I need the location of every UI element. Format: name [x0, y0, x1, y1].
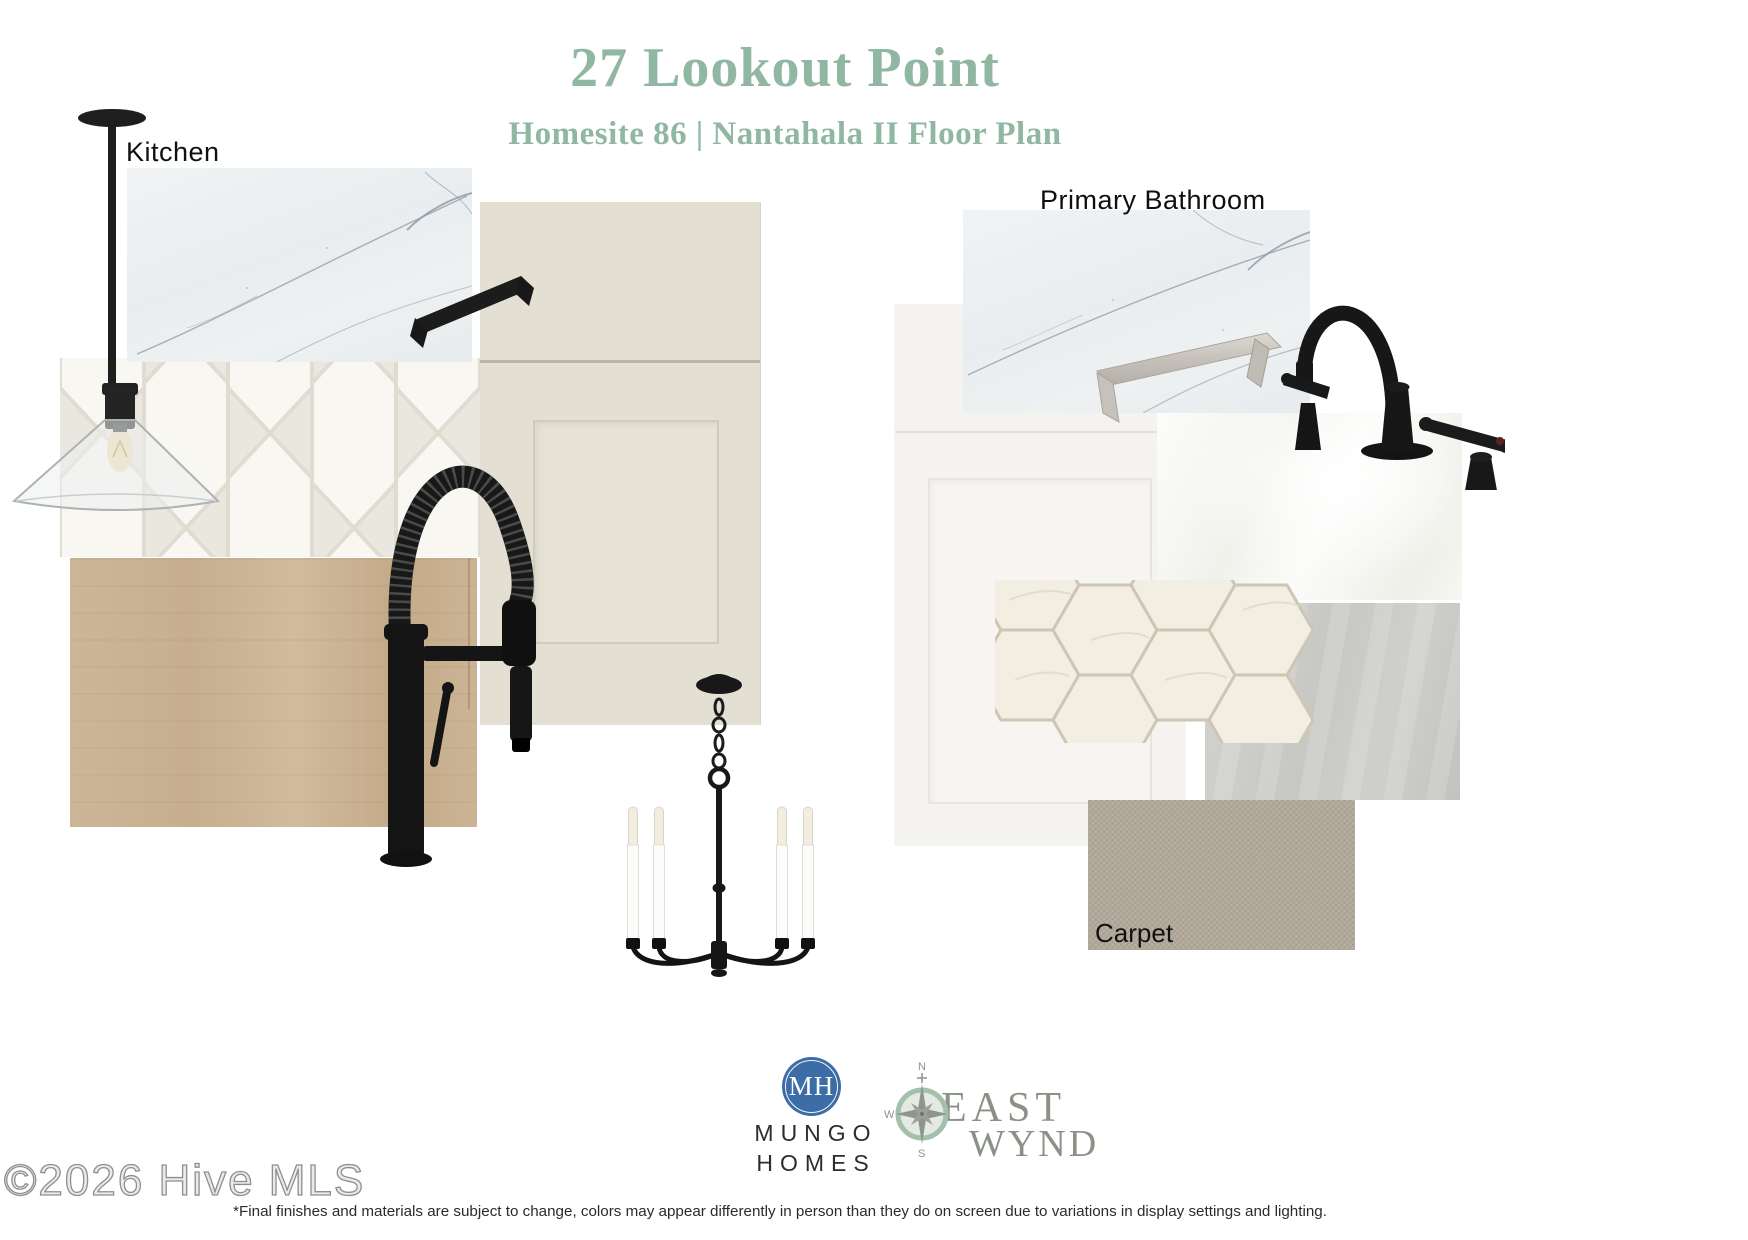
- hexagon-mosaic-swatch: [995, 580, 1315, 743]
- east-wynd-compass-icon: N W S: [884, 1052, 964, 1162]
- mh-monogram: MH: [782, 1057, 841, 1116]
- cabinet-groove: [480, 360, 760, 363]
- chandelier-icon: [555, 635, 865, 985]
- mungo-wordmark-line1: MUNGO: [754, 1120, 877, 1147]
- disclaimer-text: *Final finishes and materials are subjec…: [233, 1203, 1327, 1220]
- mood-board: 27 Lookout Point Homesite 86 | Nantahala…: [0, 0, 1748, 1240]
- carpet-swatch: Carpet: [1088, 800, 1355, 950]
- kitchen-section-label: Kitchen: [126, 137, 220, 168]
- compass-n-label: N: [918, 1061, 926, 1073]
- mls-watermark: ©2026 Hive MLS: [4, 1156, 365, 1206]
- page-subtitle: Homesite 86 | Nantahala II Floor Plan: [508, 116, 1061, 152]
- east-wynd-wordmark-line2: WYND: [969, 1125, 1099, 1163]
- carpet-section-label: Carpet: [1095, 918, 1173, 949]
- mungo-homes-logo: MH: [782, 1057, 841, 1116]
- compass-w-label: W: [884, 1109, 895, 1121]
- bathroom-section-label: Primary Bathroom: [1040, 185, 1266, 216]
- nickel-cabinet-pull-icon: [1085, 325, 1295, 440]
- compass-s-label: S: [918, 1148, 925, 1160]
- bathroom-faucet-icon: [1275, 275, 1505, 490]
- pendant-light-icon: [8, 105, 238, 525]
- kitchen-faucet-icon: [330, 430, 590, 890]
- page-title: 27 Lookout Point: [508, 38, 1061, 100]
- header: 27 Lookout Point Homesite 86 | Nantahala…: [508, 38, 1061, 152]
- black-cabinet-pull-icon: [405, 258, 555, 350]
- mungo-wordmark-line2: HOMES: [756, 1150, 875, 1177]
